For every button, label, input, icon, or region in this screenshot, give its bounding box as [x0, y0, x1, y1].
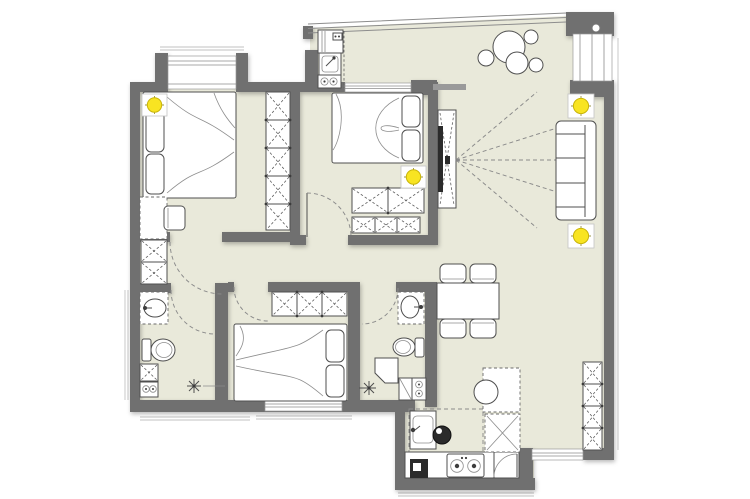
window-bedroom-3-south [265, 401, 342, 411]
ceiling-light-symbol [568, 94, 594, 118]
washer-box [140, 382, 158, 397]
wardrobe-bedroom-1 [265, 92, 292, 230]
column-marker [592, 24, 600, 32]
tv-screen [438, 126, 443, 192]
shower-floor-drain [362, 381, 376, 395]
wall [268, 282, 348, 292]
wash-basin [140, 292, 168, 324]
wall [228, 282, 234, 292]
wall [305, 50, 318, 92]
wall [428, 82, 438, 245]
wall [348, 282, 360, 412]
utility-sink [319, 53, 341, 75]
balcony-utility [318, 30, 344, 88]
wall [130, 82, 140, 412]
wall [236, 53, 248, 92]
dining-chair [440, 319, 466, 338]
wardrobe-bedroom-2 [352, 187, 424, 215]
dining-chair [470, 319, 496, 338]
wall [566, 12, 614, 36]
wall [425, 282, 437, 407]
double-bed [332, 93, 423, 163]
double-bed [234, 324, 347, 401]
wall [215, 283, 228, 412]
desk-chair [164, 206, 185, 230]
wall [130, 82, 158, 92]
pillow [326, 330, 344, 362]
wall [222, 232, 300, 242]
wall [290, 235, 306, 245]
pillow [146, 112, 164, 152]
toilet [393, 338, 424, 357]
bay-window-bedroom-1 [168, 56, 236, 89]
hall-cabinet [141, 240, 167, 284]
wall [290, 82, 300, 242]
cooking-pot [433, 426, 451, 444]
utility-appliance [318, 75, 341, 88]
wall [348, 235, 438, 245]
cabinet-living-south [582, 362, 604, 450]
wall [396, 282, 437, 292]
sofa [556, 121, 596, 220]
tv-unit [438, 110, 456, 208]
floor-plan [0, 0, 750, 499]
kitchen-sink [410, 411, 436, 449]
wash-basin [398, 292, 424, 324]
washing-machine [318, 30, 343, 53]
dining-chair [470, 264, 496, 283]
wardrobe-bedroom-3 [272, 291, 347, 318]
basin-circle [474, 380, 498, 404]
ceiling-light-symbol [401, 166, 426, 188]
bathroom-cabinet [140, 364, 158, 381]
wall [400, 478, 535, 490]
dining-table [437, 283, 499, 319]
washer-box [412, 378, 426, 400]
floor-plan-canvas [0, 0, 750, 499]
wall [395, 402, 405, 490]
wall [248, 82, 312, 92]
wall [155, 53, 168, 92]
wall-stub [433, 84, 466, 90]
window-living-southeast [532, 449, 583, 460]
window-bedroom-2 [345, 83, 411, 92]
pillow [326, 365, 344, 397]
stove-2-burner [447, 454, 484, 477]
window-living-northeast [573, 34, 612, 81]
bathroom-cabinet [399, 378, 412, 400]
ceiling-light-symbol [142, 94, 167, 116]
kitchen-column [410, 459, 428, 478]
pillow [402, 96, 420, 127]
entry-door [494, 452, 519, 478]
dining-chair [440, 264, 466, 283]
ceiling-light-symbol [568, 224, 594, 248]
pillow [146, 154, 164, 194]
pillow [402, 130, 420, 161]
wall [604, 95, 614, 452]
hall-wardrobe [352, 217, 420, 233]
toilet [142, 339, 175, 361]
